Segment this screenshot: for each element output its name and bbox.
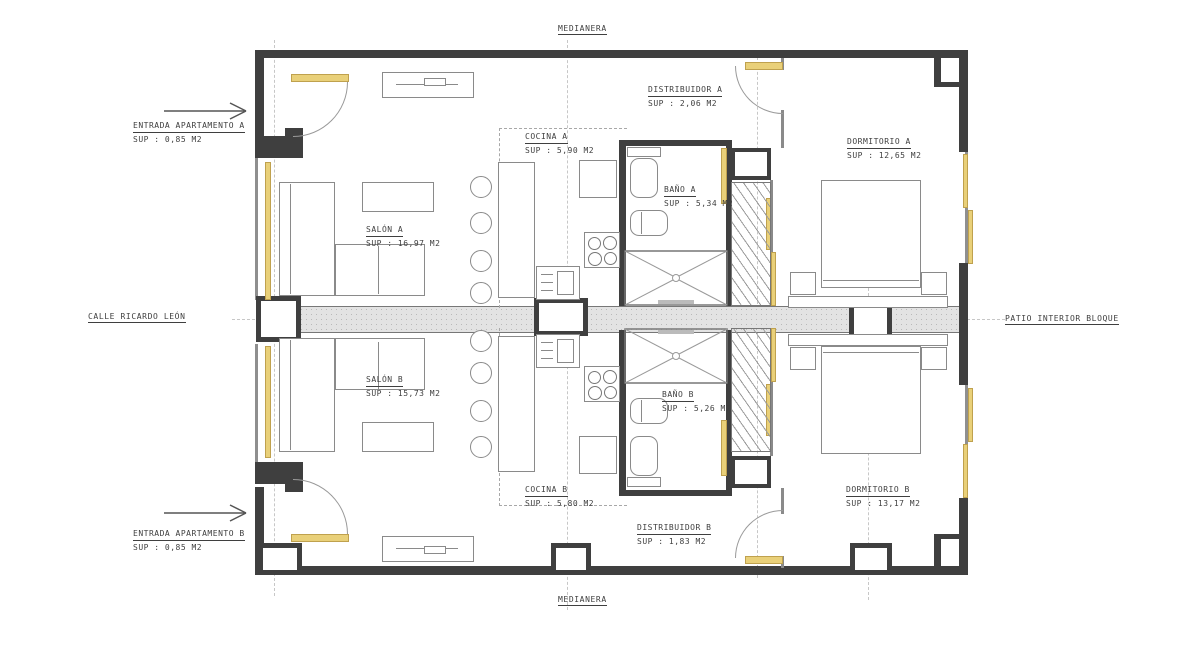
window-right-dormitorio-a-1 [963, 154, 968, 208]
nightstand-b-left [790, 347, 816, 370]
kitchen-sink-b [536, 334, 580, 368]
wall-top [255, 50, 968, 58]
partition-bath-b-bottom [619, 490, 732, 496]
room-name: DORMITORIO A [847, 136, 911, 149]
chair-b-3 [470, 400, 492, 422]
chair-b-1 [470, 330, 492, 352]
burner [588, 371, 601, 384]
label-salon-a: SALÓN A SUP : 16,97 M2 [366, 224, 440, 249]
label-salon-b: SALÓN B SUP : 15,73 M2 [366, 374, 440, 399]
bidet-a [630, 210, 668, 236]
label-calle-ricardo-leon: CALLE RICARDO LEÓN [88, 312, 186, 323]
room-area: SUP : 15,73 M2 [366, 388, 440, 399]
pillar-bottom-right [850, 543, 892, 575]
entrance-name: ENTRADA APARTAMENTO B [133, 528, 245, 541]
sofa-a-backrest [290, 184, 291, 294]
chair-a-1 [470, 176, 492, 198]
coffee-table-a [362, 182, 434, 212]
bed-b [821, 346, 921, 454]
burner [588, 252, 602, 266]
window-right-dormitorio-b-1 [968, 388, 973, 442]
door-swing-distribuidor-a [735, 66, 783, 114]
chair-a-3 [470, 250, 492, 272]
room-area: SUP : 2,06 M2 [648, 98, 722, 109]
pilaster-bottom-right-return [934, 534, 968, 539]
bed-a-headboard [788, 296, 948, 308]
toilet-b-bowl [630, 436, 658, 476]
chair-b-2 [470, 362, 492, 384]
door-swing-entrance-b [293, 479, 348, 534]
wardrobe-a [731, 182, 771, 306]
floor-plan-canvas: MEDIANERA MEDIANERA CALLE RICARDO LEÓN P… [0, 0, 1200, 650]
kitchen-counter-b [498, 336, 535, 472]
label-entrada-apartamento-b: ENTRADA APARTAMENTO B SUP : 0,85 M2 [133, 528, 245, 553]
room-area: SUP : 1,83 M2 [637, 536, 711, 547]
window-line-left-b [255, 344, 258, 462]
nightstand-a-left [790, 272, 816, 295]
tv-a [424, 78, 446, 86]
label-medianera-bottom: MEDIANERA [558, 595, 607, 606]
burner [588, 237, 601, 250]
toilet-b-tank [627, 477, 661, 487]
room-area: SUP : 5,80 M2 [525, 498, 594, 509]
shower-b [624, 328, 728, 384]
bed-b-fold-line [823, 352, 919, 353]
room-name: BAÑO B [662, 389, 694, 402]
chair-a-4 [470, 282, 492, 304]
burner [603, 236, 617, 250]
room-name: DORMITORIO B [846, 484, 910, 497]
sofa-a-chaise-seam [378, 246, 379, 294]
door-swing-distribuidor-b [735, 510, 783, 558]
room-name: DISTRIBUIDOR A [648, 84, 722, 97]
entrance-area: SUP : 0,85 M2 [133, 542, 245, 553]
partition-dormitorio-a-left [781, 110, 784, 148]
drainboard-line [541, 274, 553, 275]
window-right-dormitorio-b-2 [963, 444, 968, 498]
room-area: SUP : 5,90 M2 [525, 145, 594, 156]
partition-bath-a-top [619, 140, 732, 146]
chair-a-2 [470, 212, 492, 234]
burner [604, 252, 617, 265]
chair-b-4 [470, 436, 492, 458]
nightstand-a-right [921, 272, 947, 295]
drainboard-line [541, 282, 553, 283]
label-distribuidor-a: DISTRIBUIDOR A SUP : 2,06 M2 [648, 84, 722, 109]
wardrobe-b-door-1 [771, 328, 776, 382]
burner [603, 370, 617, 384]
sink-basin [557, 339, 574, 363]
burner [604, 386, 617, 399]
window-right-dormitorio-a-2 [968, 210, 973, 264]
room-area: SUP : 13,17 M2 [846, 498, 920, 509]
room-area: SUP : 12,65 M2 [847, 150, 921, 161]
label-patio-interior-bloque: PATIO INTERIOR BLOQUE [1005, 314, 1119, 325]
bed-a-fold-line [823, 280, 919, 281]
label-dormitorio-b: DORMITORIO B SUP : 13,17 M2 [846, 484, 920, 509]
pillar-bottom-mid [551, 543, 591, 575]
door-leaf-entrance-b [291, 534, 349, 542]
label-medianera-top: MEDIANERA [558, 24, 607, 35]
coffee-table-b [362, 422, 434, 452]
label-cocina-b: COCINA B SUP : 5,80 M2 [525, 484, 594, 509]
window-line-left-a [255, 158, 258, 300]
room-name: SALÓN B [366, 374, 403, 387]
kitchen-sink-a [536, 266, 580, 300]
stove-b [584, 366, 620, 402]
door-leaf-entrance-a [291, 74, 349, 82]
pilaster-bottom-right [934, 538, 941, 566]
kitchen-cabinet-b [579, 436, 617, 474]
toilet-a-bowl [630, 158, 658, 198]
label-bano-a: BAÑO A SUP : 5,34 M2 [664, 184, 733, 209]
bed-a [821, 180, 921, 288]
room-name: DISTRIBUIDOR B [637, 522, 711, 535]
entrance-name: ENTRADA APARTAMENTO A [133, 120, 245, 133]
duct-box-b [731, 456, 771, 488]
tv-b [424, 546, 446, 554]
entrance-b-arrow [158, 502, 256, 524]
sofa-a-chaise [335, 244, 425, 296]
room-area: SUP : 5,26 M2 [662, 403, 731, 414]
wall-left-upper [255, 50, 264, 138]
wall-right-mid [959, 263, 968, 385]
label-entrada-apartamento-a: ENTRADA APARTAMENTO A SUP : 0,85 M2 [133, 120, 245, 145]
label-bano-b: BAÑO B SUP : 5,26 M2 [662, 389, 731, 414]
kitchen-counter-a [498, 162, 535, 298]
pilaster-top-right-return [934, 82, 968, 87]
drainboard-line [541, 358, 553, 359]
room-area: SUP : 16,97 M2 [366, 238, 440, 249]
entrance-area: SUP : 0,85 M2 [133, 134, 245, 145]
nightstand-b-right [921, 347, 947, 370]
label-cocina-a: COCINA A SUP : 5,90 M2 [525, 131, 594, 156]
sink-basin [557, 271, 574, 295]
window-left-salon-b [265, 346, 271, 458]
pillar-bottom-left [258, 543, 302, 575]
shower-a [624, 250, 728, 306]
door-bath-b [721, 420, 727, 476]
toilet-a-tank [627, 147, 661, 157]
label-distribuidor-b: DISTRIBUIDOR B SUP : 1,83 M2 [637, 522, 711, 547]
room-name: COCINA B [525, 484, 568, 497]
room-name: SALÓN A [366, 224, 403, 237]
pillar-central-mid [534, 298, 588, 336]
wardrobe-b [731, 328, 771, 452]
pillar-central-left [256, 296, 301, 342]
kitchen-cabinet-a [579, 160, 617, 198]
sofa-b-backrest [290, 340, 291, 450]
drainboard-line [541, 342, 553, 343]
stove-a [584, 232, 620, 268]
room-area: SUP : 5,34 M2 [664, 198, 733, 209]
window-left-salon-a [265, 162, 271, 300]
burner [588, 386, 602, 400]
drainboard-line [541, 290, 553, 291]
drainboard-line [541, 350, 553, 351]
bidet-b-line [641, 400, 642, 422]
label-dormitorio-a: DORMITORIO A SUP : 12,65 M2 [847, 136, 921, 161]
room-name: COCINA A [525, 131, 568, 144]
entrance-a-arrow [158, 100, 256, 122]
sofa-b-long [279, 338, 335, 452]
room-name: BAÑO A [664, 184, 696, 197]
wardrobe-a-door-2 [771, 252, 776, 306]
door-swing-entrance-a [293, 82, 348, 137]
duct-box-a [731, 148, 771, 180]
bed-b-headboard [788, 334, 948, 346]
wall-right-upper [959, 50, 968, 152]
kitchen-a-open-boundary-top [499, 128, 627, 129]
vestibule-a-wall [255, 136, 303, 158]
bidet-a-line [641, 212, 642, 234]
sofa-a-long [279, 182, 335, 296]
